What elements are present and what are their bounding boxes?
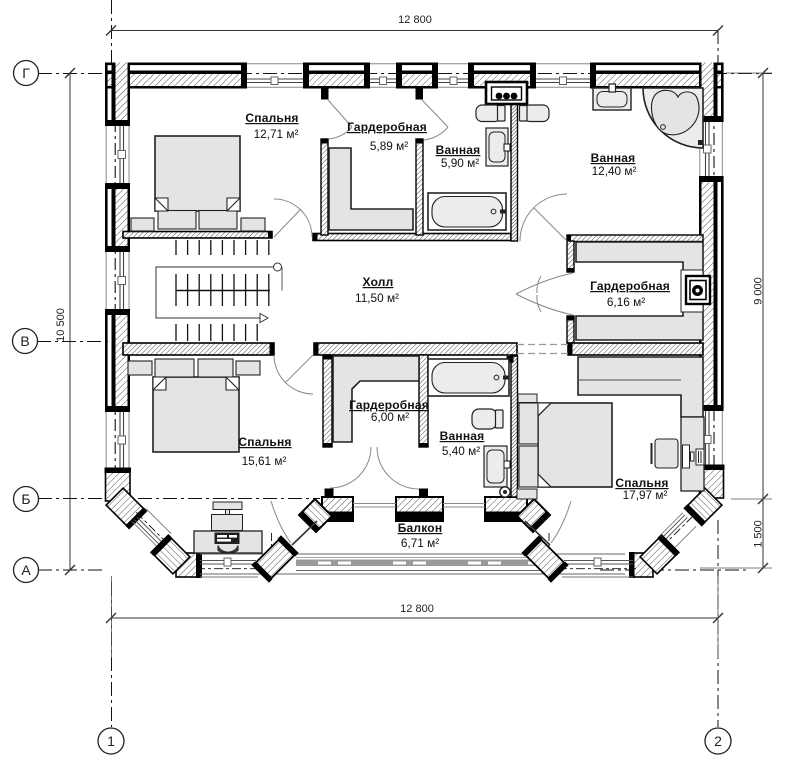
svg-text:1: 1 xyxy=(107,733,115,749)
svg-text:В: В xyxy=(20,333,29,349)
svg-text:Б: Б xyxy=(21,491,30,507)
svg-text:Ванная: Ванная xyxy=(436,143,481,157)
svg-text:Г: Г xyxy=(22,65,30,81)
svg-text:6,00 м²: 6,00 м² xyxy=(371,410,409,424)
svg-text:Гардеробная: Гардеробная xyxy=(590,279,670,293)
svg-text:15,61 м²: 15,61 м² xyxy=(242,454,287,468)
svg-text:6,16 м²: 6,16 м² xyxy=(607,295,645,309)
svg-text:17,97 м²: 17,97 м² xyxy=(623,488,668,502)
svg-text:9 000: 9 000 xyxy=(753,277,765,305)
svg-text:11,50 м²: 11,50 м² xyxy=(355,291,399,305)
svg-text:Гардеробная: Гардеробная xyxy=(347,120,427,134)
svg-text:12 800: 12 800 xyxy=(400,603,434,615)
svg-text:5,40 м²: 5,40 м² xyxy=(442,444,480,458)
svg-text:Ванная: Ванная xyxy=(440,429,485,443)
svg-text:Балкон: Балкон xyxy=(398,521,443,535)
svg-text:10 500: 10 500 xyxy=(55,308,67,342)
svg-text:Спальня: Спальня xyxy=(238,435,291,449)
svg-text:5,89 м²: 5,89 м² xyxy=(370,139,408,153)
svg-text:Спальня: Спальня xyxy=(245,111,298,125)
svg-text:1 500: 1 500 xyxy=(753,520,765,548)
svg-text:12,71 м²: 12,71 м² xyxy=(254,127,299,141)
svg-text:А: А xyxy=(21,562,31,578)
svg-text:2: 2 xyxy=(714,733,722,749)
svg-text:5,90 м²: 5,90 м² xyxy=(441,156,479,170)
svg-text:Холл: Холл xyxy=(363,275,394,289)
svg-text:Ванная: Ванная xyxy=(591,151,636,165)
svg-text:12,40 м²: 12,40 м² xyxy=(592,164,637,178)
svg-text:12 800: 12 800 xyxy=(398,14,432,26)
svg-text:6,71 м²: 6,71 м² xyxy=(401,536,439,550)
